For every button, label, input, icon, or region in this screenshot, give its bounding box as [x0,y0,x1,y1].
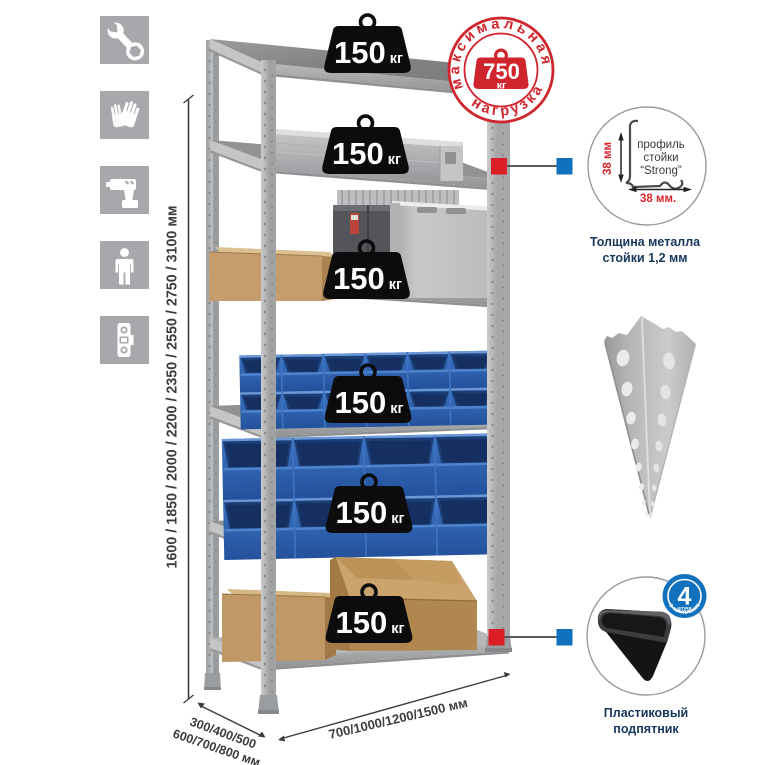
svg-text:“Strong”: “Strong” [640,165,682,177]
svg-text:стойки: стойки [643,152,678,164]
svg-text:38 мм: 38 мм [602,142,614,175]
svg-text:кг: кг [497,80,507,92]
svg-text:Толщина металла: Толщина металла [590,235,701,249]
svg-text:Пластиковый: Пластиковый [604,706,688,720]
svg-text:подпятник: подпятник [613,722,679,736]
svg-text:38 мм.: 38 мм. [640,193,676,205]
svg-text:штуки: штуки [678,606,692,611]
svg-text:стойки 1,2 мм: стойки 1,2 мм [603,251,688,265]
svg-text:1600 / 1850 / 2000 / 2200 / 23: 1600 / 1850 / 2000 / 2200 / 2350 / 2550 … [165,206,181,569]
svg-text:профиль: профиль [637,139,685,151]
